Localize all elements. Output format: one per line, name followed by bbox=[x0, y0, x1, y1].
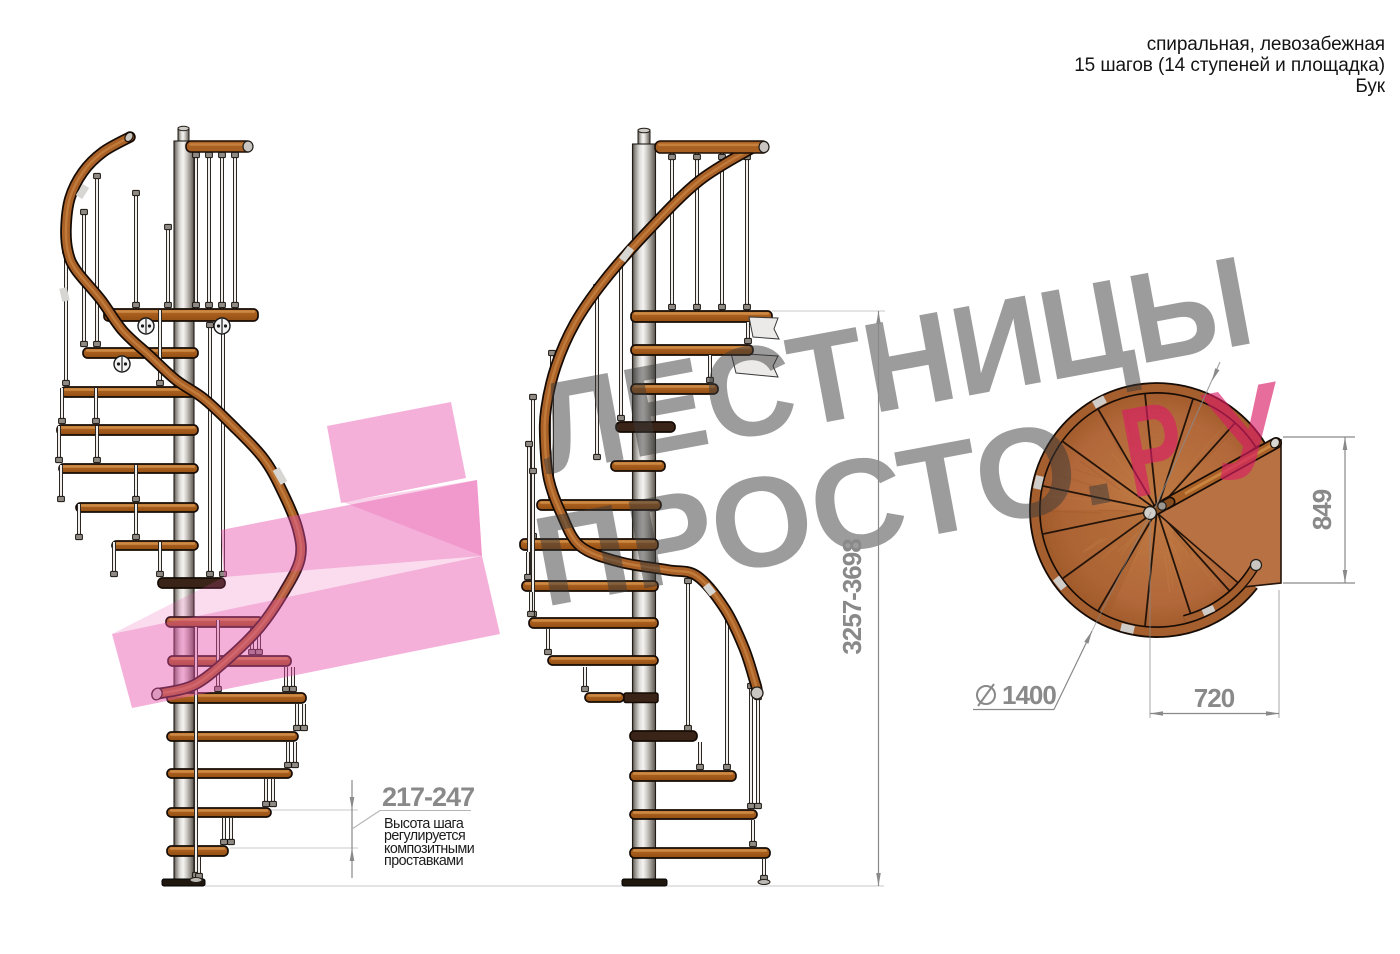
svg-text:проставками: проставками bbox=[384, 853, 463, 869]
svg-text:849: 849 bbox=[1307, 489, 1337, 530]
svg-text:15 шагов (14 ступеней и площад: 15 шагов (14 ступеней и площадка) bbox=[1074, 55, 1385, 76]
svg-text:спиральная, левозабежная: спиральная, левозабежная bbox=[1147, 34, 1385, 55]
svg-text:720: 720 bbox=[1194, 683, 1235, 713]
svg-text:217-247: 217-247 bbox=[382, 782, 474, 812]
svg-text:Бук: Бук bbox=[1355, 76, 1385, 97]
svg-text:3257-3698: 3257-3698 bbox=[837, 539, 867, 655]
svg-text:1400: 1400 bbox=[1002, 680, 1056, 710]
